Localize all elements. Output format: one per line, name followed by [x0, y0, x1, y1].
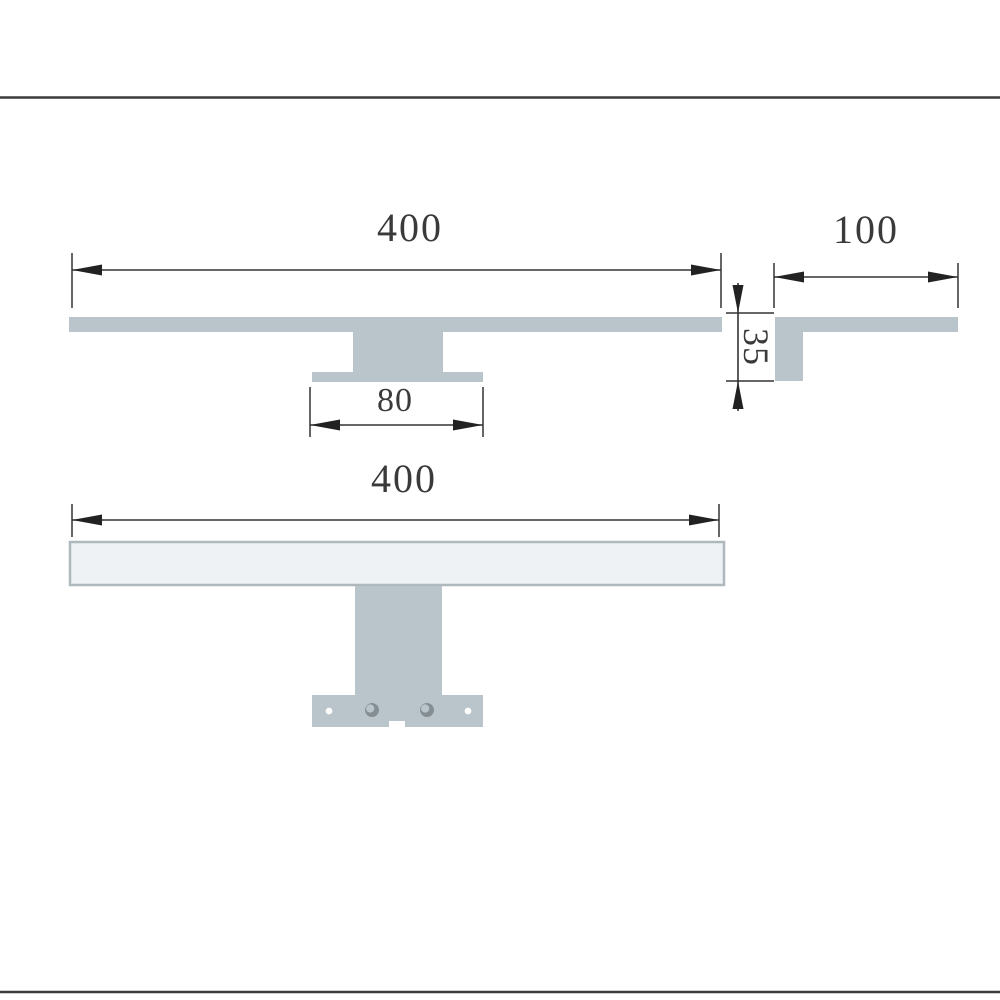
end-view-l-profile — [775, 317, 958, 381]
dim-arrow-left — [72, 265, 102, 276]
dimension-bracket-width: 80 — [310, 382, 483, 437]
dim-label-front-width: 400 — [371, 456, 437, 501]
dim-arrow-left — [72, 515, 102, 526]
end-view-profile — [775, 317, 958, 381]
technical-drawing: 400 80 35 — [0, 0, 1000, 1000]
dimension-end-depth: 100 — [774, 207, 958, 308]
dim-arrow-left — [774, 272, 804, 283]
dim-arrow-right — [453, 420, 483, 431]
dim-arrow-right — [689, 515, 719, 526]
dimension-profile-height: 35 — [726, 283, 776, 411]
dim-label-end-depth: 100 — [833, 207, 899, 252]
dim-arrow-right — [691, 265, 721, 276]
screw-hole-right — [465, 708, 472, 715]
side-view-foot — [312, 372, 483, 382]
dim-arrow-left — [310, 420, 340, 431]
screw-hole-left — [326, 708, 333, 715]
dimension-front-width: 400 — [72, 456, 719, 537]
dim-arrow-down — [733, 285, 744, 313]
dim-label-side-width: 400 — [377, 205, 443, 250]
side-view-stem — [353, 331, 443, 373]
side-view-lamp-bar — [69, 317, 722, 332]
front-view-lamp — [70, 542, 724, 728]
side-view-profile — [69, 317, 722, 382]
dim-label-profile-height: 35 — [736, 328, 776, 366]
dim-arrow-right — [928, 272, 958, 283]
dimension-side-width: 400 — [72, 205, 721, 308]
bracket-bottom-notch — [389, 721, 405, 728]
dim-label-bracket-width: 80 — [377, 382, 413, 419]
front-view-lamp-face — [70, 542, 724, 585]
dim-arrow-up — [733, 381, 744, 409]
front-view-stem — [355, 585, 442, 697]
drawing-sheet: 400 80 35 — [0, 0, 1000, 1000]
